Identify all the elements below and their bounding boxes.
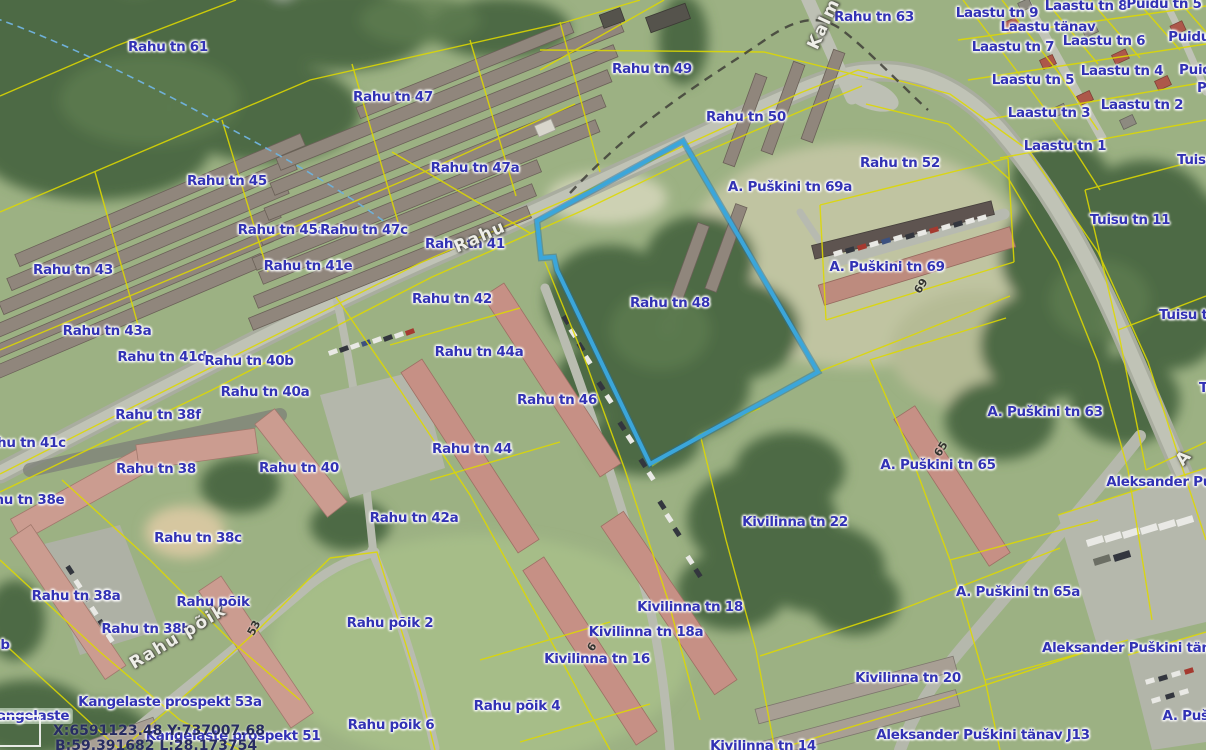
coordinate-readout-bl: B:59.391682 L:28.173754 [55,738,257,750]
coordinate-readout-xy: X:6591123.48 Y:737007.68 [53,723,265,739]
selection-box [0,715,41,747]
aerial-basemap [0,0,1206,750]
map-viewport[interactable]: Rahu tn 61Rahu tn 63Laastu tn 9Laastu tn… [0,0,1206,750]
